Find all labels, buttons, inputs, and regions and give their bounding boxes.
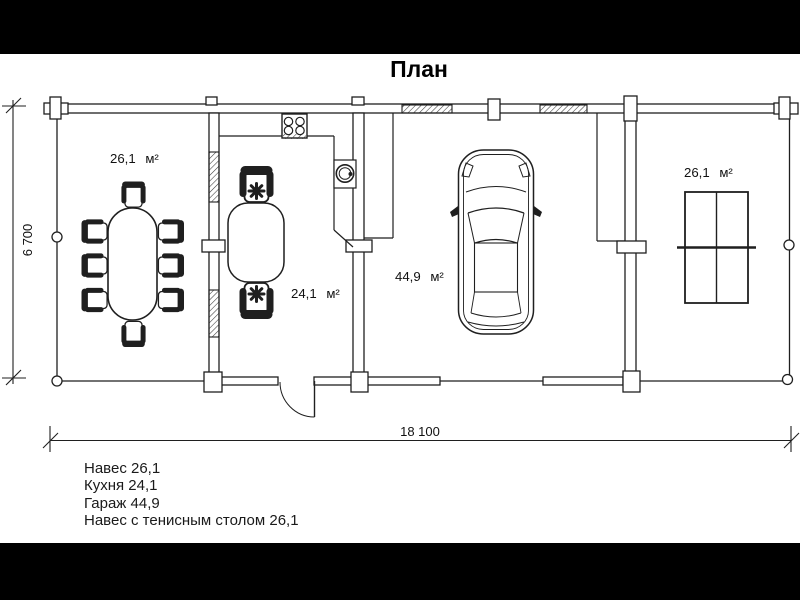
car-mirror <box>533 206 542 217</box>
corner-cross-top-left <box>50 97 61 119</box>
dining-table <box>108 208 157 320</box>
window-top-1 <box>402 105 452 113</box>
chair-icon <box>82 288 108 312</box>
top-stub <box>488 99 500 120</box>
stove-icon <box>282 114 307 139</box>
wall-bottom-garage-left <box>314 377 440 385</box>
wall-bottom-garage-right <box>543 377 623 385</box>
slide-floor-plan: { "title": "План", "plan": { "rooms": [ … <box>0 0 800 600</box>
window-kitchen-wall-1 <box>209 152 219 202</box>
walls <box>53 104 792 385</box>
kitchen-table <box>228 203 284 282</box>
bottom-cross <box>351 372 368 392</box>
room-area-label-garage: 44,9 м² <box>395 269 444 284</box>
legend-item-garage: Гараж 44,9 <box>84 495 299 512</box>
legend-item-canopy: Навес 26,1 <box>84 460 299 477</box>
post-circle <box>52 232 62 242</box>
corner-cross-top-right <box>779 97 790 119</box>
post-circle <box>783 375 793 385</box>
legend-item-tennis: Навес с тенисным столом 26,1 <box>84 512 299 529</box>
post-circle <box>784 240 794 250</box>
room-area-label-kitchen: 24,1 м² <box>291 286 340 301</box>
door <box>280 381 315 417</box>
mid-cross <box>346 240 372 252</box>
post-circle <box>52 376 62 386</box>
car-top-view <box>450 150 542 334</box>
window-kitchen-wall-2 <box>209 290 219 337</box>
legend-item-kitchen: Кухня 24,1 <box>84 477 299 494</box>
sink-icon <box>334 160 356 188</box>
mid-cross <box>202 240 225 252</box>
tennis-table <box>677 192 756 303</box>
chair-icon <box>121 321 145 347</box>
wall-bottom-kitchen <box>220 377 278 385</box>
legend: Навес 26,1 Кухня 24,1 Гараж 44,9 Навес с… <box>84 460 299 530</box>
top-stub <box>352 97 364 105</box>
chair-icon <box>158 288 184 312</box>
top-stub <box>206 97 217 105</box>
room-area-label-tennis: 26,1 м² <box>684 165 733 180</box>
dimension-height-label: 6 700 <box>20 224 35 257</box>
chair-icon <box>158 219 184 243</box>
kitchen-set <box>228 166 284 319</box>
mid-cross <box>617 241 646 253</box>
dimension-width-label: 18 100 <box>400 424 440 439</box>
car-mirror <box>450 206 459 217</box>
door-arc <box>280 382 315 417</box>
chair-icon <box>82 219 108 243</box>
bottom-cross <box>623 371 640 392</box>
chair-icon <box>121 182 145 208</box>
bottom-cross <box>204 372 222 392</box>
room-area-label-canopy: 26,1 м² <box>110 151 159 166</box>
window-top-2 <box>540 105 587 113</box>
chair-icon <box>82 253 108 277</box>
dining-set <box>82 182 185 348</box>
kitchen-counter-diagonal <box>334 230 353 247</box>
chair-icon <box>158 253 184 277</box>
top-cross <box>624 96 637 121</box>
